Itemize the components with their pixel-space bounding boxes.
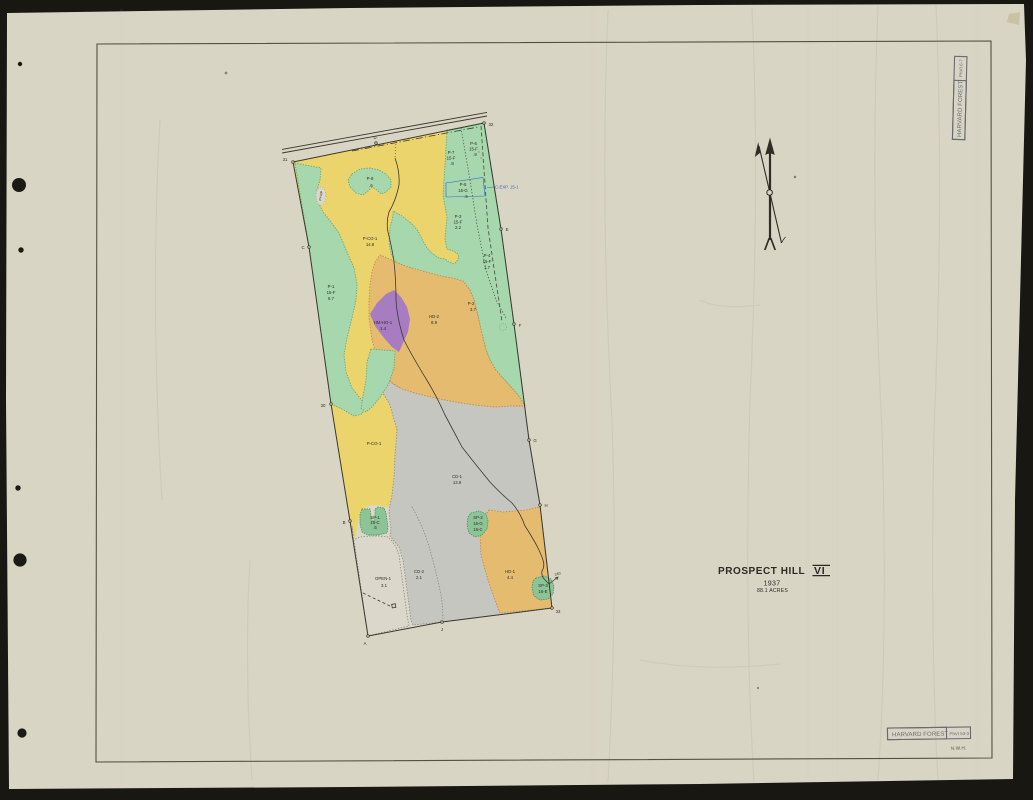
svg-text:2.1: 2.1 [416, 575, 423, 580]
svg-text:3.1: 3.1 [381, 583, 388, 588]
svg-text:1937: 1937 [764, 581, 781, 588]
svg-text:C: C [301, 245, 304, 250]
svg-text:E: E [506, 227, 509, 232]
svg-text:6.7: 6.7 [328, 296, 335, 301]
svg-text:CD-2: CD-2 [414, 569, 425, 574]
svg-text:.6: .6 [369, 183, 373, 188]
svg-text:8.9: 8.9 [431, 320, 438, 325]
svg-text:13.9: 13.9 [453, 480, 462, 485]
svg-text:16-C: 16-C [473, 527, 482, 532]
svg-text:.5: .5 [373, 525, 377, 530]
svg-text:P-1: P-1 [328, 284, 335, 289]
svg-text:C-EXP. 15-1: C-EXP. 15-1 [495, 185, 519, 190]
svg-text:P-5: P-5 [460, 182, 467, 187]
svg-text:14.8: 14.8 [366, 242, 375, 247]
svg-text:P-4: P-4 [484, 253, 491, 258]
svg-text:.5: .5 [464, 194, 468, 199]
svg-text:15-G: 15-G [458, 188, 468, 193]
svg-text:P-2: P-2 [468, 301, 475, 306]
svg-text:32: 32 [489, 122, 494, 127]
svg-text:B: B [343, 520, 346, 525]
svg-text:F: F [519, 323, 522, 328]
svg-text:.9: .9 [473, 152, 477, 157]
svg-text:A: A [364, 641, 367, 646]
svg-text:15-F: 15-F [327, 290, 336, 295]
svg-text:3.7: 3.7 [470, 307, 477, 312]
svg-text:30: 30 [321, 403, 326, 408]
svg-text:2.2: 2.2 [455, 225, 462, 230]
svg-text:4.4: 4.4 [507, 575, 514, 580]
svg-text:SP-2: SP-2 [473, 515, 483, 520]
svg-text:N.W.H.: N.W.H. [951, 745, 967, 750]
svg-text:P-CO-1: P-CO-1 [367, 441, 382, 446]
svg-text:HD-2: HD-2 [429, 314, 440, 319]
svg-text:15-F: 15-F [447, 156, 456, 161]
svg-text:16-E: 16-E [538, 589, 547, 594]
svg-text:88.1 ACRES: 88.1 ACRES [757, 588, 788, 594]
svg-text:P-7: P-7 [448, 150, 455, 155]
svg-text:15-F: 15-F [469, 147, 478, 152]
svg-text:P-3: P-3 [455, 214, 462, 219]
svg-text:OPEN-1: OPEN-1 [375, 576, 392, 581]
svg-text:J: J [441, 627, 443, 632]
svg-text:1.7: 1.7 [484, 265, 491, 270]
svg-text:HARVARD FOREST: HARVARD FOREST [892, 732, 948, 739]
svg-text:PhVI 6-7: PhVI 6-7 [958, 59, 963, 77]
svg-text:16-G: 16-G [473, 521, 483, 526]
svg-text:P-CO-1: P-CO-1 [363, 236, 378, 241]
svg-text:PROSPECT HILL: PROSPECT HILL [718, 566, 805, 577]
svg-text:HD-1: HD-1 [505, 569, 516, 574]
svg-text:33: 33 [556, 609, 561, 614]
svg-text:15-F: 15-F [454, 220, 463, 225]
svg-text:D: D [373, 135, 376, 140]
svg-text:SP-3: SP-3 [538, 583, 548, 588]
svg-text:P-8: P-8 [367, 176, 374, 181]
svg-text:1.4: 1.4 [380, 326, 387, 331]
svg-text:PhVI 53-3: PhVI 53-3 [949, 731, 969, 736]
svg-text:15-F: 15-F [483, 259, 492, 264]
svg-text:HM-HO-1: HM-HO-1 [374, 320, 393, 325]
svg-text:CD-1: CD-1 [452, 474, 463, 479]
svg-text:31: 31 [283, 157, 288, 162]
svg-text:H: H [544, 503, 547, 508]
svg-text:P-6: P-6 [470, 141, 477, 146]
svg-text:.8: .8 [450, 161, 454, 166]
